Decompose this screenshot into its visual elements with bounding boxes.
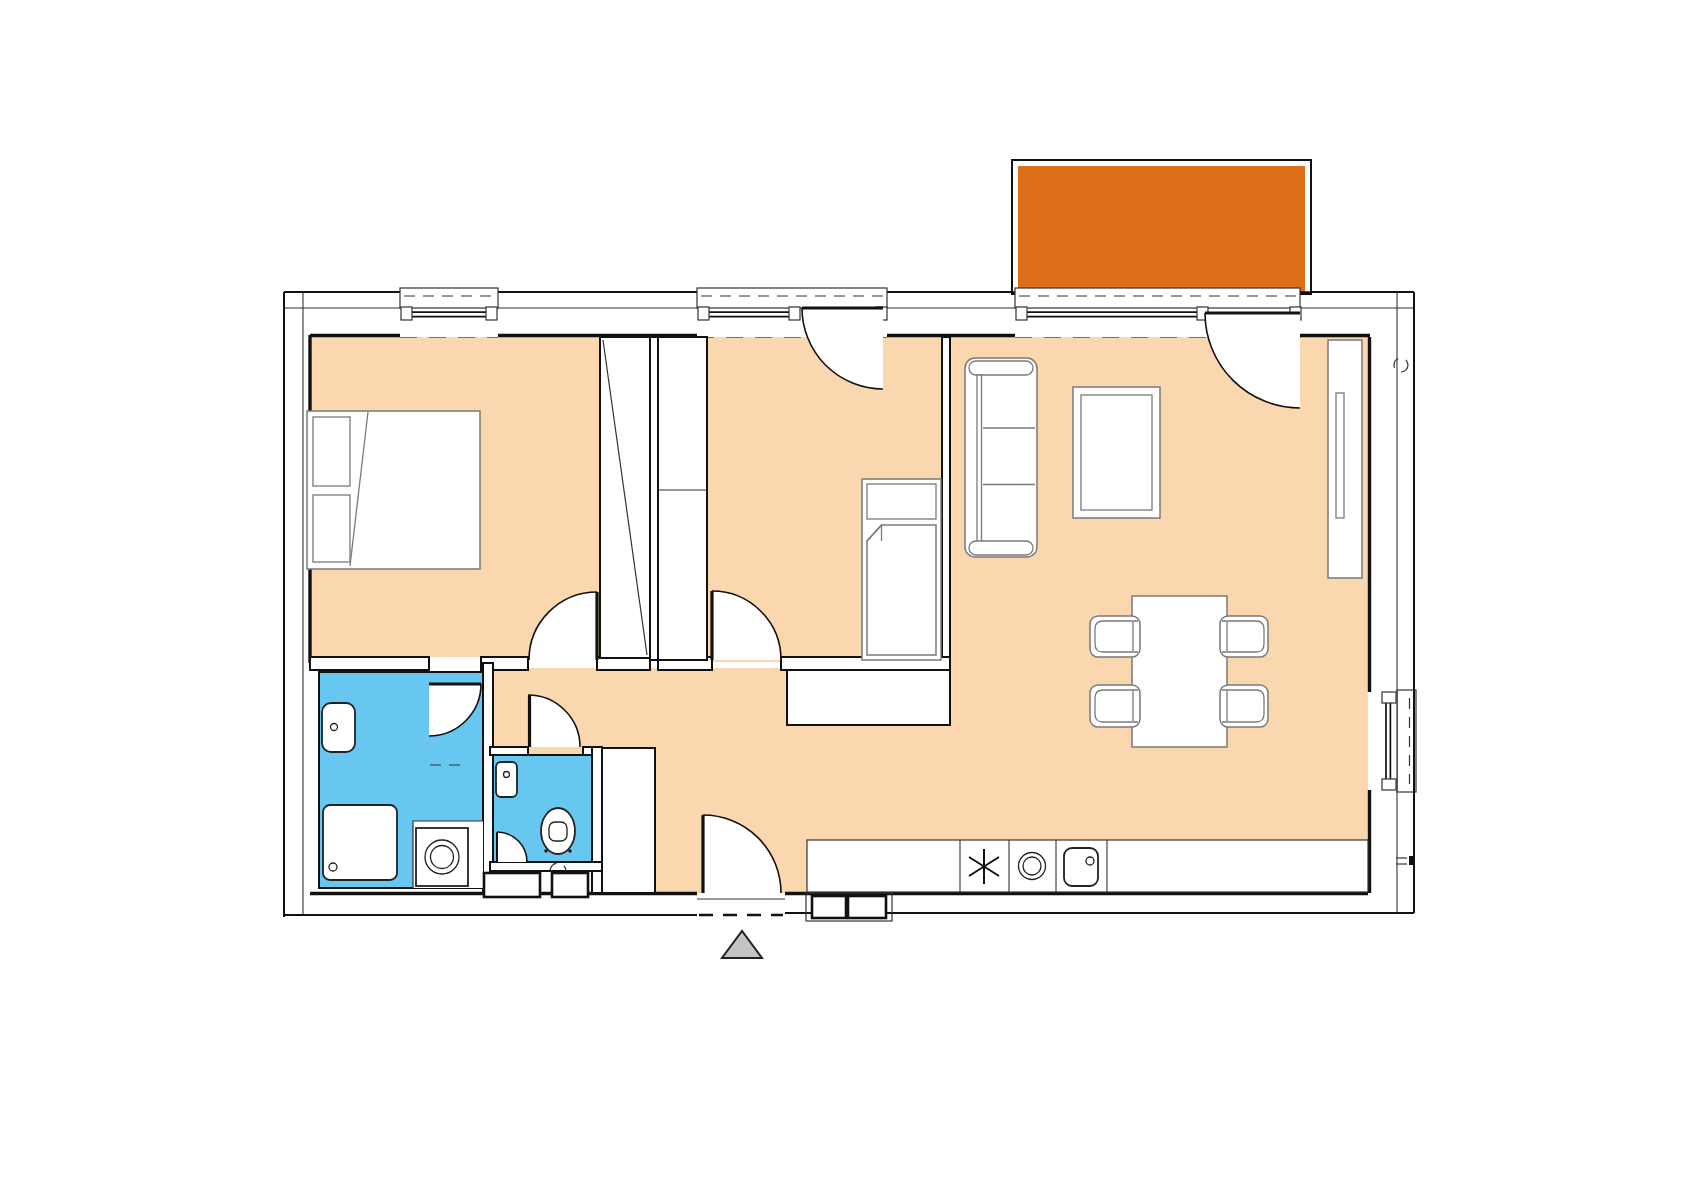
bed-blanket [867, 525, 936, 655]
service-box [812, 896, 846, 918]
washbasin [322, 703, 355, 752]
floor-plan-drawing [0, 0, 1684, 1190]
balcony-floor [1018, 166, 1305, 292]
window-jamb [401, 307, 412, 320]
window-jamb [486, 307, 497, 320]
closet-bedroom2 [658, 337, 707, 660]
window-jamb [1016, 307, 1027, 320]
wall-wc-top-left [490, 747, 528, 755]
dining-table [1132, 596, 1227, 747]
window-opening [1368, 692, 1397, 790]
dining-chair [1220, 616, 1268, 657]
wall-wc-bottom [490, 862, 602, 871]
service-box [552, 873, 588, 897]
service-box [484, 873, 540, 897]
sofa [965, 358, 1037, 557]
wall-bedroom1-bedroom2 [650, 337, 658, 660]
toilet-bowl [541, 808, 575, 854]
floor-plan-page [0, 0, 1684, 1190]
dining-chair [1220, 685, 1268, 727]
window-jamb [1382, 692, 1396, 703]
right-wall-body [1368, 292, 1414, 913]
wall-bedroom2-living [942, 337, 950, 668]
washing-machine [416, 828, 468, 886]
entry-opening [697, 893, 785, 915]
tv-sideboard [1328, 340, 1362, 578]
hall-closet [602, 748, 655, 893]
service-box [848, 896, 886, 918]
toilet-mount-dot [544, 849, 547, 852]
balcony [1012, 160, 1311, 294]
double-bed [307, 411, 480, 569]
wc-washbasin [496, 762, 517, 797]
window-jamb [698, 307, 709, 320]
coffee-table [1073, 387, 1160, 518]
entrance-arrow-icon [722, 931, 762, 958]
toilet-mount-dot [568, 849, 571, 852]
vent-mark [1409, 856, 1414, 865]
wall-segment [310, 657, 429, 670]
kitchen-sink [1064, 848, 1098, 886]
wall-bathroom-hall [483, 663, 493, 893]
window-jamb [789, 307, 800, 320]
shower-tray [323, 805, 397, 880]
window-bedroom1 [400, 288, 498, 337]
dining-chair [1090, 685, 1140, 727]
kitchen [807, 840, 1368, 892]
dining-chair [1090, 616, 1140, 657]
window-jamb [1382, 779, 1396, 790]
hall-wardrobe-niche [787, 670, 950, 725]
